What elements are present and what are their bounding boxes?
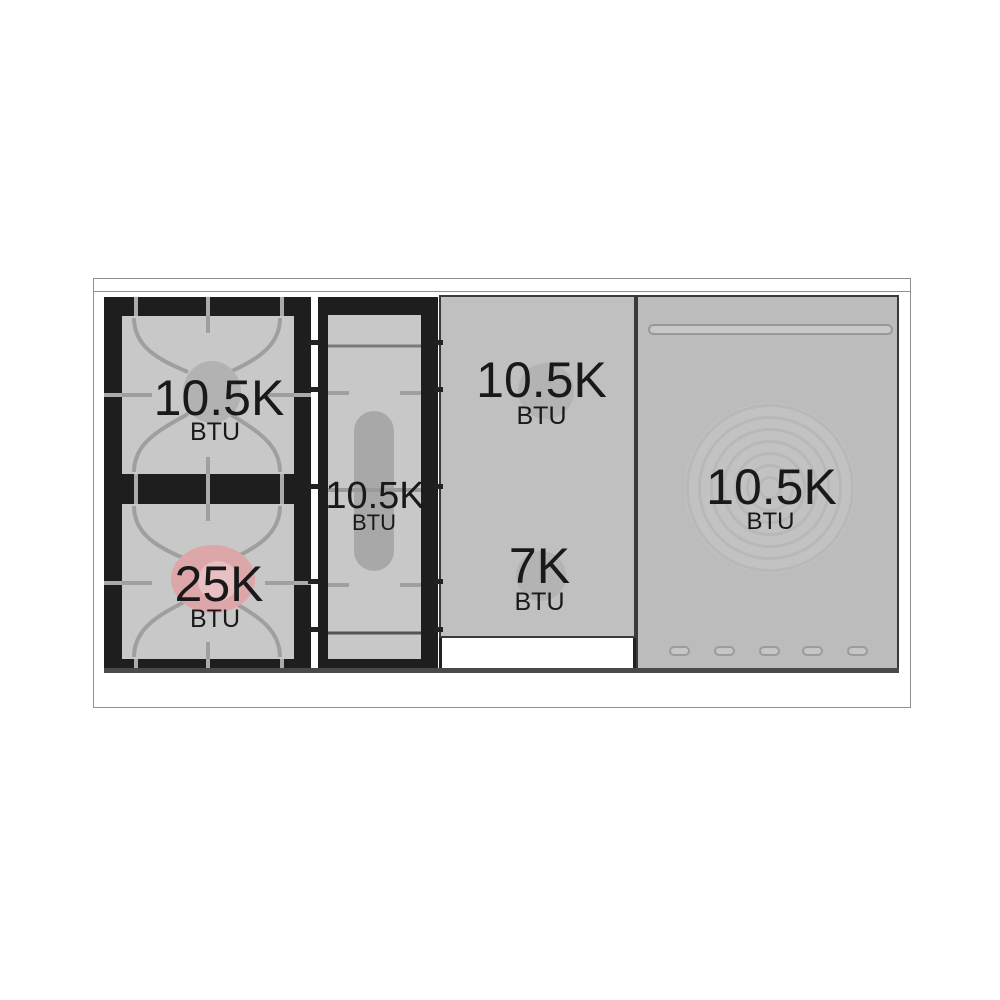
unit-label: BTU xyxy=(443,404,640,429)
french-top-module: 10.5K BTU xyxy=(636,295,899,673)
power-label: 25K xyxy=(129,559,309,609)
power-label: 7K xyxy=(441,541,638,591)
unit-label: BTU xyxy=(125,607,305,632)
unit-label: BTU xyxy=(441,590,638,615)
power-label: 10.5K xyxy=(129,373,309,423)
grate-bridge-tick xyxy=(434,484,443,489)
left-burner-module: 10.5K BTU 25K BTU xyxy=(104,297,311,673)
vent-slot xyxy=(714,646,735,656)
power-label: 10.5K xyxy=(443,355,640,405)
grate-bridge-tick xyxy=(308,387,320,392)
range-top-outline: 10.5K BTU 25K BTU xyxy=(93,278,911,708)
unit-label: BTU xyxy=(125,420,305,445)
grate-bridge-tick xyxy=(434,627,443,632)
unit-label: BTU xyxy=(639,510,902,534)
power-label: 10.5K xyxy=(640,462,903,512)
vent-slot xyxy=(802,646,823,656)
vent-slot xyxy=(759,646,780,656)
cooktop-diagram: 10.5K BTU 25K BTU xyxy=(0,0,1000,1000)
griddle-module: 10.5K BTU 7K BTU xyxy=(439,295,636,673)
grease-tray xyxy=(439,638,636,668)
vent-slot xyxy=(847,646,868,656)
grate-bridge-tick xyxy=(434,340,443,345)
vent-slot xyxy=(669,646,690,656)
center-oval-burner-module: 10.5K BTU xyxy=(318,297,438,673)
grate-bridge-tick xyxy=(308,579,320,584)
grate-bridge-tick xyxy=(308,340,320,345)
grate-bridge-tick xyxy=(434,387,443,392)
grate-bridge-tick xyxy=(308,627,320,632)
lid-handle xyxy=(648,324,893,335)
backsplash-trim xyxy=(94,279,910,292)
cooktop-front-edge xyxy=(104,668,899,673)
unit-label: BTU xyxy=(314,512,434,534)
